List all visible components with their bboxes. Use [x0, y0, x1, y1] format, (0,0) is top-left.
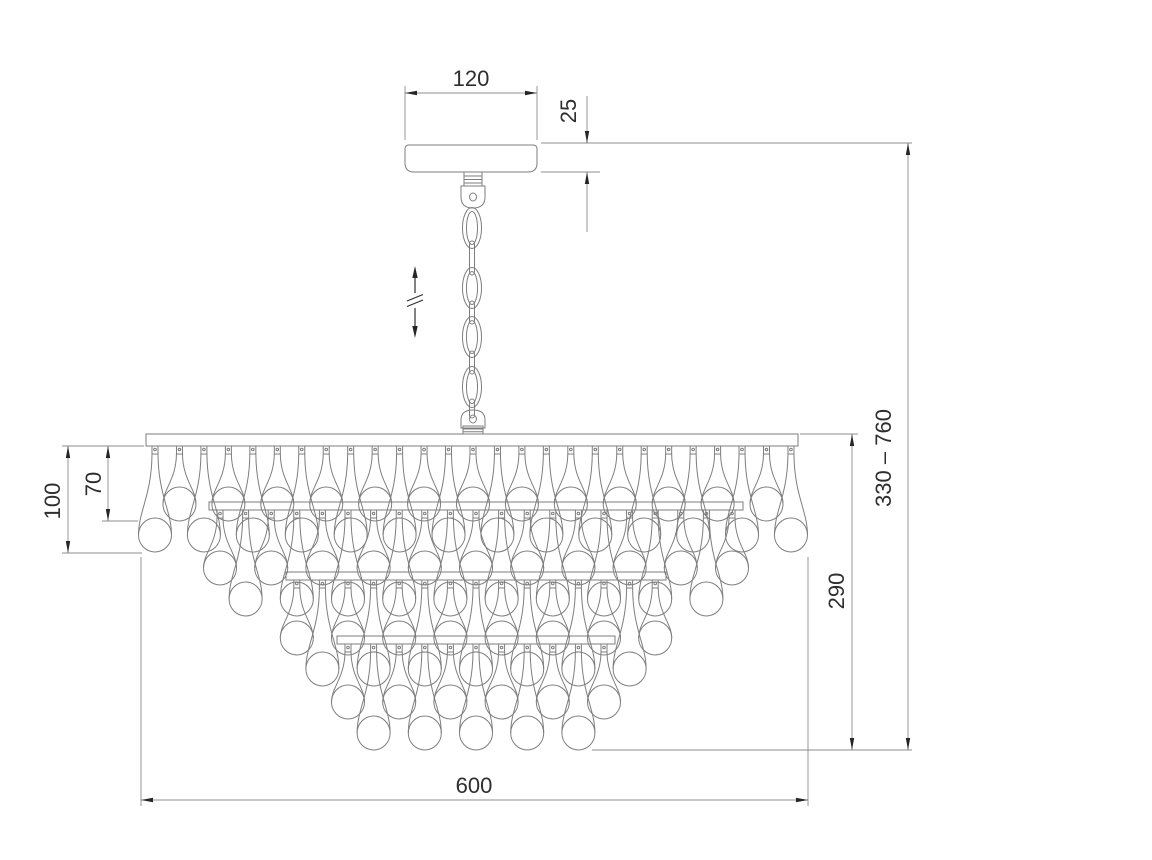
drawing-canvas: 120 25 70 100: [0, 0, 1152, 860]
drop-hanger-hole: [219, 512, 222, 515]
drop-hanger-hole: [398, 646, 401, 649]
drop-ball: [562, 716, 595, 750]
dim-label-total-height: 330 – 760: [871, 409, 896, 507]
drop-hanger-hole: [325, 448, 328, 451]
drop-hanger-hole: [552, 512, 555, 515]
drop-ball: [639, 582, 672, 616]
drop-hanger-hole: [731, 512, 734, 515]
crystal-tier-1: [139, 446, 808, 552]
chain-oval-link: [463, 208, 482, 249]
dim-label-long-drop: 100: [40, 483, 65, 520]
drop-hanger-hole: [347, 582, 350, 585]
crystal-drop-long: [511, 644, 544, 750]
drop-stem: [511, 518, 544, 568]
drop-hanger-hole: [244, 512, 247, 515]
dim-total-height: 330 – 760: [871, 143, 910, 750]
drop-hanger-hole: [521, 448, 524, 451]
drop-ball: [613, 652, 646, 686]
drop-ball: [408, 487, 441, 521]
crystal-drop-short: [639, 580, 672, 655]
crystal-drop-long: [460, 644, 493, 750]
drop-ball: [460, 716, 493, 750]
drop-ball: [554, 487, 587, 521]
drop-stem: [554, 454, 587, 504]
drop-ball: [652, 487, 685, 521]
drop-stem: [306, 518, 339, 568]
drop-ball: [310, 487, 343, 521]
crystal-drop-long: [613, 580, 646, 686]
drop-ball: [460, 652, 493, 686]
drop-hanger-hole: [500, 582, 503, 585]
crystal-drop-short: [204, 510, 237, 585]
drop-hanger-hole: [628, 512, 631, 515]
drop-hanger-hole: [398, 448, 401, 451]
drop-ball: [511, 716, 544, 750]
chain-edge-link: [470, 241, 475, 275]
crystal-drop-long: [334, 446, 367, 552]
drop-ball: [588, 582, 621, 616]
drop-stem: [310, 454, 343, 504]
drop-hanger-hole: [603, 512, 606, 515]
drop-stem: [163, 454, 196, 504]
dim-label-canopy-height: 25: [556, 99, 581, 123]
ferrule-hole: [470, 415, 477, 423]
drop-stem: [212, 454, 245, 504]
drop-ball: [690, 582, 723, 616]
drop-hanger-hole: [372, 582, 375, 585]
drop-stem: [639, 588, 672, 638]
drop-stem: [457, 454, 490, 504]
drop-stem: [750, 454, 783, 504]
drop-hanger-hole: [423, 448, 426, 451]
drop-hanger-hole: [643, 448, 646, 451]
drop-hanger-hole: [372, 512, 375, 515]
crystal-drop-short: [562, 510, 595, 585]
canopy-outline: [405, 145, 537, 172]
dim-canopy-height: 25: [541, 96, 912, 232]
drop-ball: [603, 487, 636, 521]
drop-hanger-hole: [765, 448, 768, 451]
drop-ball: [285, 518, 318, 552]
drop-hanger-hole: [321, 512, 324, 515]
drop-hanger-hole: [475, 646, 478, 649]
drop-ball: [306, 652, 339, 686]
drop-hanger-hole: [270, 512, 273, 515]
drop-hanger-hole: [475, 582, 478, 585]
top-ferrule: [461, 172, 485, 208]
drop-hanger-hole: [398, 582, 401, 585]
crystal-drop-long: [306, 580, 339, 686]
drop-ball: [261, 487, 294, 521]
drop-stem: [408, 454, 441, 504]
drop-hanger-hole: [577, 512, 580, 515]
drop-hanger-hole: [526, 582, 529, 585]
drop-hanger-hole: [526, 512, 529, 515]
drop-hanger-hole: [449, 582, 452, 585]
drop-hanger-hole: [741, 448, 744, 451]
crystal-drop-long: [229, 510, 262, 616]
crystal-drop-long: [139, 446, 172, 552]
drop-ball: [357, 716, 390, 750]
drop-hanger-hole: [296, 582, 299, 585]
chain-oval-link: [463, 367, 482, 408]
tier-bar: [209, 502, 743, 510]
drop-stem: [332, 588, 365, 638]
adjust-down-arrow-icon: [412, 326, 417, 338]
drop-hanger-hole: [276, 448, 279, 451]
crystal-drop-long: [690, 510, 723, 616]
drop-hanger-hole: [667, 448, 670, 451]
adjust-up-arrow-icon: [412, 266, 417, 278]
dim-label-short-drop: 70: [81, 472, 106, 496]
drop-ball: [383, 582, 416, 616]
crystal-drop-long: [562, 644, 595, 750]
crystal-drop-long: [285, 446, 318, 552]
drop-stem: [716, 518, 749, 568]
crystal-drop-long: [357, 580, 390, 686]
drop-hanger-hole: [552, 582, 555, 585]
drop-hanger-hole: [500, 512, 503, 515]
drop-hanger-hole: [449, 512, 452, 515]
drop-ball: [505, 487, 538, 521]
drop-stem: [536, 588, 569, 638]
crystal-drop-short: [280, 580, 313, 655]
crystal-drop-long: [408, 644, 441, 750]
drop-hanger-hole: [618, 448, 621, 451]
crystal-drop-long: [511, 580, 544, 686]
drop-hanger-hole: [500, 646, 503, 649]
crystal-drop-long: [280, 510, 313, 616]
drop-stem: [505, 454, 538, 504]
crystal-tier-4: [332, 636, 621, 750]
ferrule-hole: [470, 193, 477, 201]
crystal-drop-long: [408, 580, 441, 686]
drop-ball: [485, 582, 518, 616]
drop-ball: [536, 582, 569, 616]
drop-hanger-hole: [472, 448, 475, 451]
drop-hanger-hole: [424, 582, 427, 585]
crystal-drop-long: [460, 580, 493, 686]
drop-hanger-hole: [300, 448, 303, 451]
drop-hanger-hole: [449, 646, 452, 649]
drop-ball: [163, 487, 196, 521]
drop-hanger-hole: [603, 646, 606, 649]
dim-drop-lengths: 70 100: [40, 446, 144, 553]
drop-hanger-hole: [654, 582, 657, 585]
frame-bar: [146, 434, 798, 446]
dim-label-body-width: 600: [456, 773, 493, 798]
drop-hanger-hole: [203, 448, 206, 451]
drop-hanger-hole: [374, 448, 377, 451]
drop-ball: [332, 582, 365, 616]
crystal-drop-long: [726, 446, 759, 552]
tier-bar: [337, 636, 615, 644]
drop-stem: [485, 588, 518, 638]
drop-hanger-hole: [475, 512, 478, 515]
drop-ball: [280, 582, 313, 616]
break-slashes-icon: [407, 295, 423, 307]
drop-ball: [357, 652, 390, 686]
chain-oval-link: [463, 268, 482, 309]
drop-ball: [677, 518, 710, 552]
drop-hanger-hole: [628, 582, 631, 585]
technical-drawing: 120 25 70 100: [0, 0, 1152, 860]
dim-canopy-width: 120: [405, 66, 537, 140]
drop-hanger-hole: [424, 646, 427, 649]
drop-hanger-hole: [545, 448, 548, 451]
drop-hanger-hole: [552, 646, 555, 649]
crystal-drop-long: [774, 446, 807, 552]
drop-stem: [383, 588, 416, 638]
suspension-chain: [461, 172, 485, 434]
crystal-drop-long: [530, 446, 563, 552]
chain-adjust-symbol: [407, 266, 423, 338]
drop-hanger-hole: [372, 646, 375, 649]
drop-hanger-hole: [424, 512, 427, 515]
drop-hanger-hole: [496, 448, 499, 451]
crystal-tier-3: [280, 572, 671, 686]
crystal-drop-long: [357, 644, 390, 750]
ceiling-canopy: [405, 145, 537, 172]
crystal-drop-long: [383, 446, 416, 552]
drop-hanger-hole: [526, 646, 529, 649]
drop-ball: [639, 621, 672, 655]
crystal-drop-long: [432, 446, 465, 552]
crystal-drop-long: [383, 510, 416, 616]
drop-hanger-hole: [577, 582, 580, 585]
crystal-drop-short: [255, 510, 288, 585]
drop-stem: [603, 454, 636, 504]
drop-ball: [432, 518, 465, 552]
drop-ball: [562, 652, 595, 686]
bottom-ferrule: [461, 410, 485, 434]
drop-stem: [562, 518, 595, 568]
frame-bar-rect: [146, 434, 798, 446]
drop-ball: [359, 487, 392, 521]
drop-stem: [280, 588, 313, 638]
dim-label-canopy-width: 120: [453, 66, 490, 91]
dim-body-width: 600: [141, 557, 808, 806]
tier-bar: [286, 572, 666, 580]
drop-hanger-hole: [349, 448, 352, 451]
drop-hanger-hole: [577, 646, 580, 649]
chain-links: [463, 208, 482, 419]
crystal-tiers: [139, 446, 808, 750]
crystal-drop-long: [536, 510, 569, 616]
drop-hanger-hole: [227, 448, 230, 451]
drop-stem: [359, 454, 392, 504]
drop-hanger-hole: [347, 646, 350, 649]
drop-hanger-hole: [716, 448, 719, 451]
drop-hanger-hole: [252, 448, 255, 451]
crystal-drop-short: [511, 510, 544, 585]
drop-ball: [187, 518, 220, 552]
drop-hanger-hole: [154, 448, 157, 451]
crystal-drop-long: [628, 446, 661, 552]
drop-ball: [511, 652, 544, 686]
drop-hanger-hole: [594, 448, 597, 451]
drop-stem: [701, 454, 734, 504]
crystal-drop-long: [588, 510, 621, 616]
drop-ball: [750, 487, 783, 521]
drop-ball: [383, 518, 416, 552]
drop-ball: [774, 518, 807, 552]
crystal-drop-long: [562, 580, 595, 686]
drop-hanger-hole: [447, 448, 450, 451]
drop-stem: [588, 588, 621, 638]
drop-stem: [261, 454, 294, 504]
drop-hanger-hole: [398, 512, 401, 515]
drop-hanger-hole: [321, 582, 324, 585]
drop-stem: [434, 588, 467, 638]
drop-ball: [588, 685, 621, 719]
crystal-drop-long: [187, 446, 220, 552]
crystal-drop-short: [750, 446, 783, 521]
drop-ball: [139, 518, 172, 552]
crystal-drop-long: [639, 510, 672, 616]
drop-hanger-hole: [296, 512, 299, 515]
drop-hanger-hole: [603, 582, 606, 585]
drop-ball: [408, 652, 441, 686]
dim-label-body-height: 290: [824, 573, 849, 610]
crystal-drop-short: [163, 446, 196, 521]
drop-hanger-hole: [680, 512, 683, 515]
chandelier-figure: [139, 145, 808, 750]
drop-stem: [255, 518, 288, 568]
drop-hanger-hole: [790, 448, 793, 451]
drop-hanger-hole: [570, 448, 573, 451]
drop-hanger-hole: [178, 448, 181, 451]
drop-hanger-hole: [347, 512, 350, 515]
drop-stem: [664, 518, 697, 568]
drop-ball: [408, 716, 441, 750]
drop-stem: [652, 454, 685, 504]
drop-ball: [434, 582, 467, 616]
drop-ball: [229, 582, 262, 616]
drop-ball: [716, 551, 749, 585]
drop-hanger-hole: [692, 448, 695, 451]
crystal-drop-long: [677, 446, 710, 552]
